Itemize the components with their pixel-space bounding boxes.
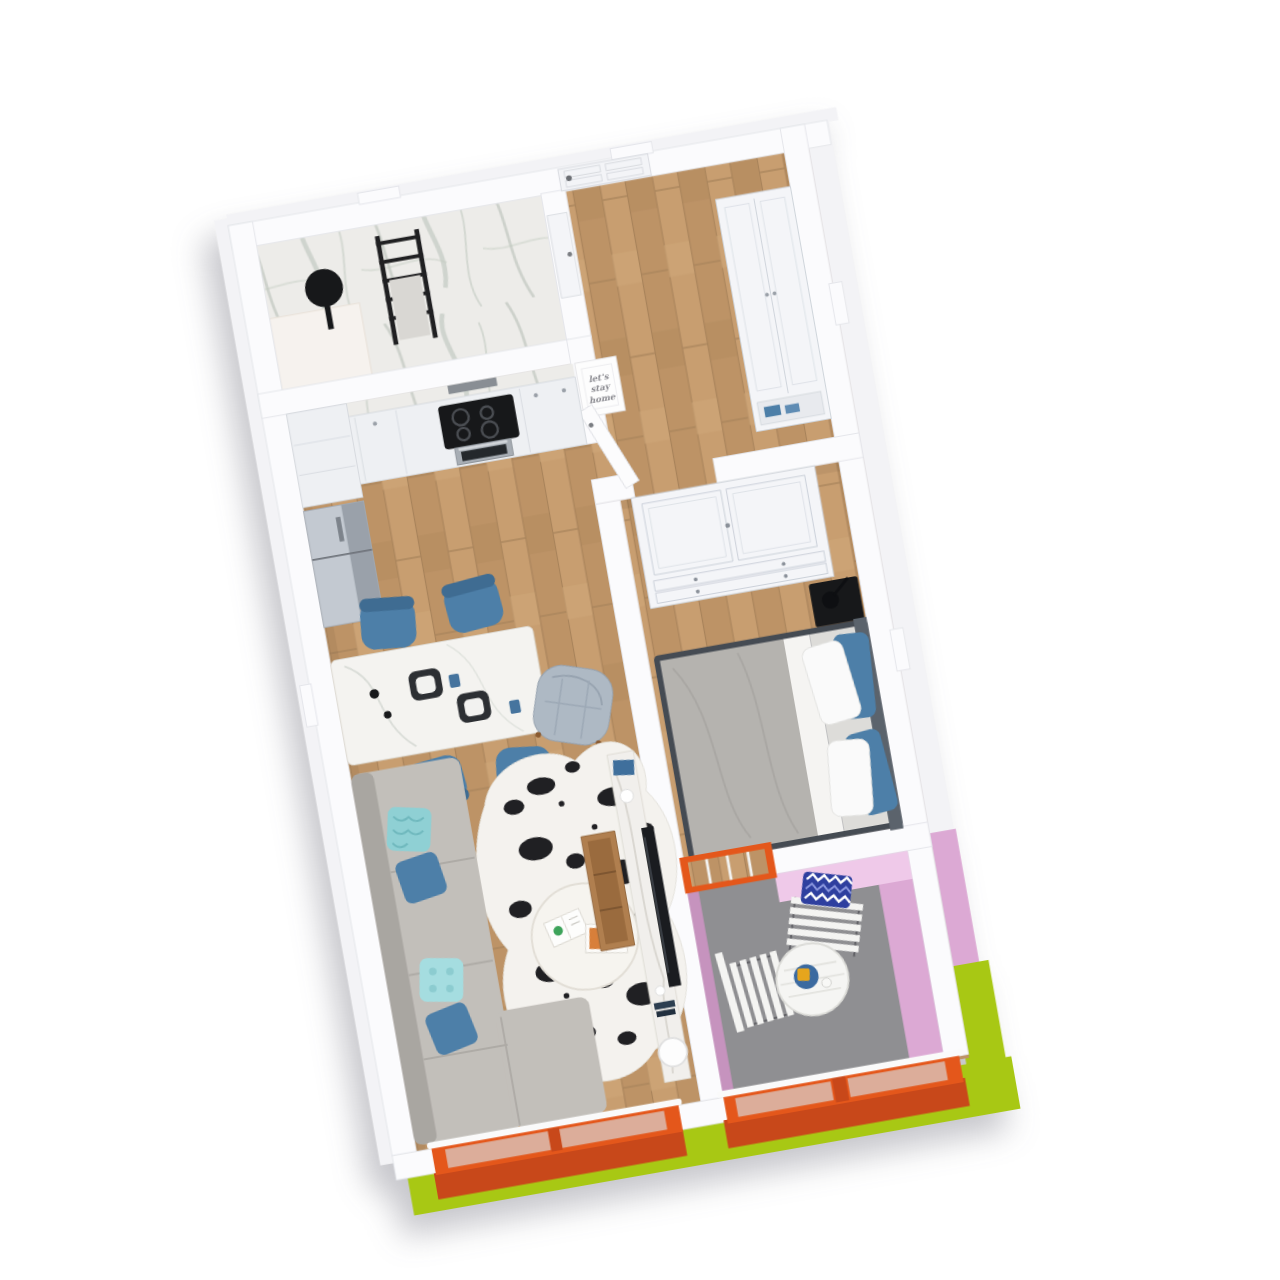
bed <box>653 617 904 866</box>
chevron-pillow <box>800 871 853 908</box>
yellow-cup <box>797 968 809 980</box>
armchair <box>530 662 616 748</box>
dining-chair-1 <box>359 595 418 650</box>
floorplan-stage: let's stay home <box>0 0 1280 1280</box>
pillow-white-2 <box>827 738 874 817</box>
sofa-pillow-teal-1 <box>386 807 431 852</box>
wall-art: let's stay home <box>575 356 626 418</box>
floorplan-render: let's stay home <box>0 0 1280 1280</box>
place-setting-2 <box>456 689 493 724</box>
console-decor-blue-box <box>613 760 634 776</box>
sofa-pillow-teal-2 <box>420 958 464 1002</box>
place-setting-1 <box>407 667 444 702</box>
